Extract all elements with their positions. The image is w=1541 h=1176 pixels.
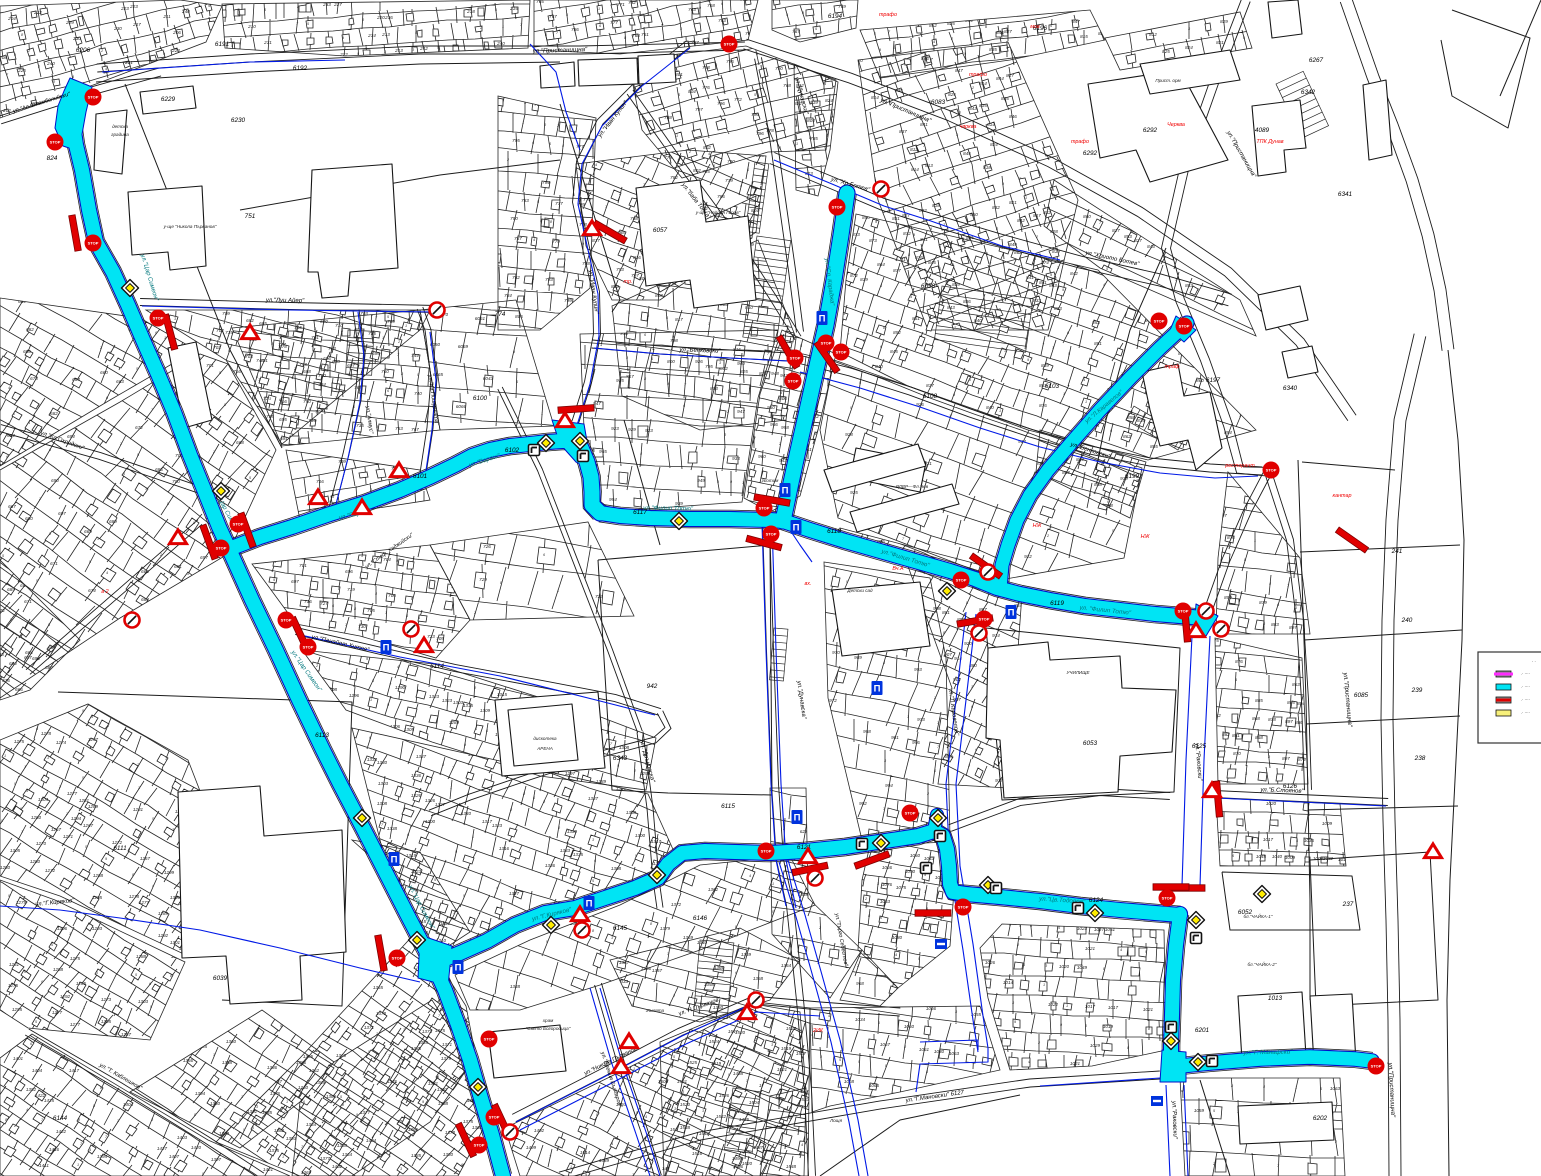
svg-text:6066: 6066 bbox=[456, 404, 467, 409]
svg-text:1305: 1305 bbox=[404, 727, 415, 732]
svg-text:STOP: STOP bbox=[474, 1143, 485, 1148]
svg-text:846: 846 bbox=[921, 56, 929, 61]
svg-text:4: 4 bbox=[26, 1108, 28, 1112]
svg-text:1514: 1514 bbox=[580, 1150, 591, 1155]
svg-text:1525: 1525 bbox=[687, 1060, 698, 1065]
svg-text:824: 824 bbox=[47, 155, 58, 162]
svg-text:1: 1 bbox=[906, 65, 908, 69]
svg-text:1304: 1304 bbox=[38, 797, 49, 802]
svg-text:837: 837 bbox=[926, 383, 934, 388]
svg-text:1519: 1519 bbox=[781, 1046, 792, 1051]
svg-text:682: 682 bbox=[50, 411, 58, 416]
svg-text:2ИК: 2ИК bbox=[812, 1028, 824, 1034]
svg-text:897: 897 bbox=[1285, 719, 1293, 724]
svg-text:1323: 1323 bbox=[411, 869, 422, 874]
svg-text:885: 885 bbox=[1287, 700, 1295, 705]
svg-text:942: 942 bbox=[647, 683, 658, 690]
svg-text:719: 719 bbox=[347, 587, 355, 592]
svg-text:788: 788 bbox=[664, 115, 672, 120]
svg-text:709: 709 bbox=[338, 459, 346, 464]
svg-text:700: 700 bbox=[172, 479, 180, 484]
svg-text:678: 678 bbox=[279, 344, 287, 349]
svg-text:817: 817 bbox=[675, 317, 683, 322]
svg-text:1487: 1487 bbox=[753, 1145, 764, 1150]
svg-text:1305: 1305 bbox=[10, 848, 21, 853]
svg-text:881: 881 bbox=[942, 610, 950, 615]
svg-text:1021: 1021 bbox=[1085, 946, 1096, 951]
svg-text:1040: 1040 bbox=[1272, 854, 1283, 859]
svg-text:1: 1 bbox=[969, 378, 971, 382]
svg-text:763: 763 bbox=[688, 7, 696, 12]
svg-text:4: 4 bbox=[1103, 283, 1105, 287]
svg-text:1305: 1305 bbox=[101, 1019, 112, 1024]
svg-text:1360: 1360 bbox=[226, 1039, 237, 1044]
svg-text:6197: 6197 bbox=[1206, 377, 1221, 384]
svg-text:1315: 1315 bbox=[497, 692, 508, 697]
svg-text:948: 948 bbox=[771, 371, 779, 376]
svg-text:1378: 1378 bbox=[445, 1130, 456, 1135]
svg-text:237: 237 bbox=[1342, 901, 1354, 908]
svg-text:845: 845 bbox=[963, 151, 971, 156]
svg-text:1: 1 bbox=[742, 481, 744, 485]
svg-text:STOP: STOP bbox=[759, 506, 770, 511]
svg-text:.· ····: .· ···· bbox=[1521, 684, 1530, 689]
svg-text:678: 678 bbox=[30, 376, 38, 381]
svg-text:4: 4 bbox=[49, 340, 51, 344]
svg-text:230: 230 bbox=[113, 26, 122, 31]
svg-text:715: 715 bbox=[266, 414, 274, 419]
svg-text:862: 862 bbox=[1123, 434, 1131, 439]
svg-text:1063: 1063 bbox=[880, 899, 891, 904]
svg-text:686: 686 bbox=[23, 349, 31, 354]
svg-text:1380: 1380 bbox=[443, 1152, 454, 1157]
svg-text:STOP: STOP bbox=[1154, 319, 1165, 324]
svg-text:STOP: STOP bbox=[836, 350, 847, 355]
svg-text:STOP: STOP bbox=[788, 379, 799, 384]
svg-text:947: 947 bbox=[737, 409, 745, 414]
svg-text:1375: 1375 bbox=[269, 1148, 280, 1153]
svg-text:1274: 1274 bbox=[56, 740, 67, 745]
svg-text:1: 1 bbox=[13, 412, 15, 416]
svg-text:1386: 1386 bbox=[296, 1060, 307, 1065]
svg-text:1: 1 bbox=[21, 830, 23, 834]
svg-text:1288: 1288 bbox=[93, 873, 104, 878]
svg-text:1411: 1411 bbox=[39, 1163, 49, 1168]
svg-text:STOP: STOP bbox=[1162, 896, 1173, 901]
svg-text:1337: 1337 bbox=[588, 796, 599, 801]
svg-text:трафо: трафо bbox=[879, 12, 897, 18]
svg-text:1375: 1375 bbox=[435, 1028, 446, 1033]
svg-text:6194: 6194 bbox=[828, 13, 843, 20]
svg-text:860: 860 bbox=[1083, 214, 1091, 219]
svg-text:821: 821 bbox=[1009, 200, 1017, 205]
svg-text:1: 1 bbox=[382, 336, 384, 340]
svg-text:STOP: STOP bbox=[958, 905, 969, 910]
svg-text:1416: 1416 bbox=[49, 1147, 60, 1152]
svg-text:839: 839 bbox=[1041, 363, 1049, 368]
svg-text:6103: 6103 bbox=[1045, 383, 1060, 390]
svg-text:1: 1 bbox=[1295, 1086, 1297, 1090]
svg-text:814: 814 bbox=[987, 122, 995, 127]
svg-text:1335: 1335 bbox=[573, 852, 584, 857]
svg-text:у-ще "Найден Геров": у-ще "Найден Геров" bbox=[695, 209, 741, 215]
svg-text:681: 681 bbox=[174, 564, 182, 569]
svg-text:853: 853 bbox=[1185, 283, 1193, 288]
svg-text:4: 4 bbox=[740, 184, 742, 188]
svg-text:1402: 1402 bbox=[332, 1164, 343, 1169]
svg-text:1355: 1355 bbox=[373, 985, 384, 990]
svg-text:785: 785 bbox=[702, 169, 710, 174]
svg-text:4: 4 bbox=[1120, 948, 1122, 952]
svg-text:709: 709 bbox=[436, 636, 444, 641]
svg-text:798: 798 bbox=[702, 65, 710, 70]
svg-text:1019: 1019 bbox=[1103, 1024, 1114, 1029]
svg-text:6111: 6111 bbox=[113, 845, 127, 852]
svg-text:6340: 6340 bbox=[1283, 385, 1298, 392]
svg-text:гьотим: гьотим bbox=[762, 478, 780, 483]
svg-text:846: 846 bbox=[996, 30, 1004, 35]
svg-text:1326: 1326 bbox=[411, 793, 422, 798]
svg-text:682: 682 bbox=[246, 318, 254, 323]
svg-text:.· ····: .· ···· bbox=[1521, 671, 1530, 676]
svg-text:1: 1 bbox=[258, 1058, 260, 1062]
svg-text:1358: 1358 bbox=[222, 1060, 233, 1065]
svg-text:774: 774 bbox=[495, 311, 506, 318]
svg-text:1285: 1285 bbox=[76, 981, 87, 986]
svg-text:4: 4 bbox=[418, 616, 420, 620]
svg-text:1295: 1295 bbox=[12, 1007, 23, 1012]
svg-text:1: 1 bbox=[83, 1006, 85, 1010]
svg-text:ул."Г. Манафски": ул."Г. Манафски" bbox=[1242, 1049, 1293, 1057]
svg-text:772: 772 bbox=[734, 97, 742, 102]
svg-text:4: 4 bbox=[880, 284, 882, 288]
svg-text:956: 956 bbox=[912, 740, 920, 745]
svg-text:1: 1 bbox=[286, 1100, 288, 1104]
svg-text:783: 783 bbox=[521, 198, 529, 203]
svg-text:4: 4 bbox=[719, 408, 721, 412]
svg-text:726: 726 bbox=[483, 544, 491, 549]
svg-text:812: 812 bbox=[910, 147, 918, 152]
svg-text:825: 825 bbox=[948, 92, 956, 97]
svg-text:1370: 1370 bbox=[219, 1131, 230, 1136]
svg-text:4: 4 bbox=[376, 425, 378, 429]
svg-text:1: 1 bbox=[598, 7, 600, 11]
svg-text:818: 818 bbox=[932, 203, 940, 208]
svg-text:709: 709 bbox=[387, 319, 395, 324]
svg-text:1548: 1548 bbox=[680, 1125, 691, 1130]
svg-text:968: 968 bbox=[856, 981, 864, 986]
svg-text:222: 222 bbox=[33, 10, 42, 15]
svg-text:1499: 1499 bbox=[526, 1145, 537, 1150]
svg-text:923: 923 bbox=[611, 426, 619, 431]
svg-text:824: 824 bbox=[1185, 45, 1193, 50]
svg-text:829: 829 bbox=[1220, 19, 1228, 24]
svg-text:897: 897 bbox=[1289, 625, 1297, 630]
svg-text:1277: 1277 bbox=[52, 1010, 63, 1015]
svg-text:940: 940 bbox=[737, 361, 745, 366]
svg-text:215: 215 bbox=[509, 6, 518, 11]
svg-text:845: 845 bbox=[928, 260, 936, 265]
svg-text:923: 923 bbox=[645, 428, 653, 433]
svg-text:П: П bbox=[383, 642, 390, 653]
svg-text:1548: 1548 bbox=[786, 1164, 797, 1169]
svg-text:6144: 6144 bbox=[53, 1115, 68, 1122]
svg-text:1021: 1021 bbox=[1143, 1007, 1154, 1012]
svg-text:815: 815 bbox=[1001, 96, 1009, 101]
svg-text:1300: 1300 bbox=[425, 819, 436, 824]
svg-text:1: 1 bbox=[1025, 196, 1027, 200]
svg-text:4: 4 bbox=[644, 1136, 646, 1140]
svg-text:1338: 1338 bbox=[626, 810, 637, 815]
svg-text:242: 242 bbox=[419, 46, 428, 51]
svg-text:1425: 1425 bbox=[44, 1098, 55, 1103]
svg-text:849: 849 bbox=[1009, 242, 1017, 247]
svg-text:ул."Филип Тотю": ул."Филип Тотю" bbox=[642, 505, 694, 513]
svg-text:STOP: STOP bbox=[303, 645, 314, 650]
svg-text:853: 853 bbox=[1124, 234, 1132, 239]
svg-text:768: 768 bbox=[632, 33, 640, 38]
svg-text:1: 1 bbox=[1063, 392, 1065, 396]
svg-text:1281: 1281 bbox=[133, 807, 144, 812]
svg-text:1061: 1061 bbox=[919, 1047, 930, 1052]
svg-text:1289: 1289 bbox=[158, 911, 169, 916]
svg-text:1: 1 bbox=[311, 353, 313, 357]
svg-text:777: 777 bbox=[555, 201, 563, 206]
svg-text:1: 1 bbox=[956, 53, 958, 57]
svg-text:1308: 1308 bbox=[611, 866, 622, 871]
svg-text:1516: 1516 bbox=[692, 1151, 703, 1156]
svg-text:1303: 1303 bbox=[378, 781, 389, 786]
svg-text:676: 676 bbox=[2, 678, 10, 683]
svg-text:799: 799 bbox=[564, 298, 572, 303]
svg-text:1067: 1067 bbox=[880, 1042, 891, 1047]
svg-text:784: 784 bbox=[504, 293, 512, 298]
svg-text:6206: 6206 bbox=[76, 47, 91, 54]
svg-text:6292: 6292 bbox=[1143, 127, 1158, 134]
svg-text:1020: 1020 bbox=[1059, 964, 1070, 969]
svg-text:672: 672 bbox=[0, 608, 5, 613]
svg-text:1059: 1059 bbox=[1194, 1108, 1205, 1113]
svg-text:1049: 1049 bbox=[1077, 965, 1088, 970]
svg-text:1547: 1547 bbox=[728, 1029, 739, 1034]
svg-text:1: 1 bbox=[385, 611, 387, 615]
svg-text:1292: 1292 bbox=[60, 994, 71, 999]
svg-text:1290: 1290 bbox=[395, 685, 406, 690]
svg-text:STOP: STOP bbox=[153, 316, 164, 321]
svg-text:929: 929 bbox=[628, 427, 636, 432]
svg-text:1: 1 bbox=[541, 412, 543, 416]
svg-text:1280: 1280 bbox=[30, 859, 41, 864]
svg-text:760: 760 bbox=[381, 369, 389, 374]
svg-text:861: 861 bbox=[1039, 280, 1047, 285]
svg-text:1009: 1009 bbox=[1285, 855, 1296, 860]
svg-text:716: 716 bbox=[279, 399, 287, 404]
svg-text:706: 706 bbox=[388, 593, 396, 598]
svg-text:1: 1 bbox=[1078, 315, 1080, 319]
svg-text:Лощя: Лощя bbox=[829, 1118, 843, 1123]
svg-text:240: 240 bbox=[46, 61, 55, 66]
svg-text:6229: 6229 bbox=[161, 96, 176, 103]
svg-text:4: 4 bbox=[739, 1052, 741, 1056]
svg-text:1404: 1404 bbox=[32, 1068, 43, 1073]
svg-text:1277: 1277 bbox=[139, 900, 150, 905]
svg-text:. .: . . bbox=[1532, 658, 1536, 663]
svg-text:4: 4 bbox=[8, 386, 10, 390]
svg-text:4: 4 bbox=[105, 67, 107, 71]
svg-text:градина: градина bbox=[111, 132, 129, 137]
svg-text:239: 239 bbox=[1411, 687, 1423, 694]
svg-text:842: 842 bbox=[1070, 271, 1078, 276]
svg-text:803: 803 bbox=[710, 386, 718, 391]
svg-text:1333: 1333 bbox=[560, 848, 571, 853]
svg-text:740: 740 bbox=[414, 391, 422, 396]
svg-text:949: 949 bbox=[697, 478, 705, 483]
svg-text:1: 1 bbox=[939, 267, 941, 271]
svg-text:тр.: тр. bbox=[624, 279, 633, 285]
svg-text:6101: 6101 bbox=[413, 473, 428, 480]
svg-text:1323: 1323 bbox=[442, 698, 453, 703]
svg-text:220: 220 bbox=[376, 15, 385, 20]
svg-text:790: 790 bbox=[510, 216, 518, 221]
svg-text:819: 819 bbox=[810, 100, 818, 105]
svg-text:1: 1 bbox=[677, 159, 679, 163]
svg-text:922: 922 bbox=[1024, 554, 1032, 559]
svg-text:4: 4 bbox=[28, 421, 30, 425]
svg-text:6083: 6083 bbox=[931, 99, 946, 106]
svg-text:1376: 1376 bbox=[270, 1091, 281, 1096]
svg-text:847: 847 bbox=[1072, 19, 1080, 24]
svg-text:1366: 1366 bbox=[183, 1058, 194, 1063]
svg-text:1273: 1273 bbox=[101, 997, 112, 1002]
svg-text:1: 1 bbox=[966, 448, 968, 452]
svg-text:1: 1 bbox=[339, 1172, 341, 1176]
svg-text:877: 877 bbox=[893, 268, 901, 273]
svg-text:814: 814 bbox=[911, 167, 919, 172]
svg-text:1377: 1377 bbox=[360, 1110, 371, 1115]
svg-text:666: 666 bbox=[15, 687, 23, 692]
svg-text:842: 842 bbox=[1017, 218, 1025, 223]
svg-text:806: 806 bbox=[515, 314, 523, 319]
svg-text:710: 710 bbox=[335, 323, 343, 328]
svg-text:1045: 1045 bbox=[1256, 854, 1267, 859]
svg-text:793: 793 bbox=[718, 18, 726, 23]
svg-text:1551: 1551 bbox=[677, 1079, 688, 1084]
svg-text:804: 804 bbox=[807, 118, 815, 123]
svg-text:П: П bbox=[1008, 607, 1015, 618]
svg-text:4: 4 bbox=[1235, 678, 1237, 682]
svg-text:1293: 1293 bbox=[92, 926, 103, 931]
svg-text:689: 689 bbox=[109, 519, 117, 524]
svg-text:1: 1 bbox=[999, 409, 1001, 413]
svg-text:815: 815 bbox=[979, 103, 987, 108]
svg-text:989: 989 bbox=[854, 655, 862, 660]
svg-text:ресторант: ресторант bbox=[1224, 463, 1255, 469]
svg-text:1288: 1288 bbox=[53, 967, 64, 972]
svg-text:4089: 4089 bbox=[1255, 127, 1270, 134]
svg-text:1385: 1385 bbox=[411, 1153, 422, 1158]
svg-text:6201: 6201 bbox=[1195, 1027, 1210, 1034]
svg-text:870: 870 bbox=[1233, 751, 1241, 756]
svg-text:899: 899 bbox=[1224, 595, 1232, 600]
svg-text:861: 861 bbox=[912, 316, 920, 321]
svg-text:1063: 1063 bbox=[949, 1051, 960, 1056]
svg-text:УЧИЛИЩЕ: УЧИЛИЩЕ bbox=[1066, 670, 1090, 675]
svg-text:1: 1 bbox=[1052, 346, 1054, 350]
svg-text:1303: 1303 bbox=[138, 999, 149, 1004]
svg-text:705: 705 bbox=[367, 608, 375, 613]
svg-text:в 2: в 2 bbox=[101, 589, 108, 595]
svg-text:1: 1 bbox=[1254, 539, 1256, 543]
svg-text:864: 864 bbox=[877, 262, 885, 267]
svg-text:933: 933 bbox=[732, 456, 740, 461]
svg-text:240: 240 bbox=[1401, 617, 1413, 624]
svg-text:1287: 1287 bbox=[121, 1032, 132, 1037]
svg-text:1306: 1306 bbox=[57, 926, 68, 931]
svg-text:1337: 1337 bbox=[416, 754, 427, 759]
svg-text:664: 664 bbox=[25, 650, 33, 655]
svg-text:1: 1 bbox=[157, 579, 159, 583]
svg-text:954: 954 bbox=[609, 497, 617, 502]
svg-text:трафо: трафо bbox=[969, 72, 987, 78]
svg-text:6124: 6124 bbox=[1089, 897, 1104, 904]
svg-text:ТПК Дунав: ТПК Дунав bbox=[1256, 139, 1283, 145]
svg-text:1026: 1026 bbox=[985, 960, 996, 965]
svg-text:223: 223 bbox=[120, 6, 129, 11]
svg-text:850: 850 bbox=[970, 212, 978, 217]
svg-text:1022: 1022 bbox=[1048, 1002, 1059, 1007]
svg-text:STOP: STOP bbox=[821, 341, 832, 346]
svg-text:874: 874 bbox=[1298, 757, 1306, 762]
svg-text:841: 841 bbox=[920, 237, 928, 242]
svg-text:790: 790 bbox=[775, 66, 783, 71]
svg-text:1280: 1280 bbox=[0, 865, 11, 870]
svg-text:АРЕНА: АРЕНА bbox=[536, 746, 553, 751]
svg-text:1: 1 bbox=[502, 25, 504, 29]
svg-text:690: 690 bbox=[51, 478, 59, 483]
svg-text:НЖ: НЖ bbox=[1033, 523, 1043, 529]
svg-text:1315: 1315 bbox=[463, 703, 474, 708]
svg-text:801: 801 bbox=[675, 72, 683, 77]
svg-text:4: 4 bbox=[939, 245, 941, 249]
svg-text:814: 814 bbox=[871, 95, 879, 100]
svg-text:788: 788 bbox=[630, 216, 638, 221]
svg-text:1375: 1375 bbox=[463, 1119, 474, 1124]
svg-text:778: 778 bbox=[766, 128, 774, 133]
svg-text:бл."ЧАЙКА-2": бл."ЧАЙКА-2" bbox=[1248, 960, 1277, 967]
svg-text:1381: 1381 bbox=[428, 1081, 439, 1086]
svg-text:1427: 1427 bbox=[157, 1146, 168, 1151]
svg-text:663: 663 bbox=[116, 379, 124, 384]
svg-text:782: 782 bbox=[670, 175, 678, 180]
svg-text:ул."Луи Айер": ул."Луи Айер" bbox=[265, 297, 305, 305]
svg-text:1422: 1422 bbox=[56, 1129, 67, 1134]
svg-text:4: 4 bbox=[1025, 337, 1027, 341]
svg-text:234: 234 bbox=[367, 33, 376, 38]
svg-text:831: 831 bbox=[892, 216, 900, 221]
svg-text:697: 697 bbox=[200, 555, 208, 560]
svg-text:1270: 1270 bbox=[36, 841, 47, 846]
svg-text:218: 218 bbox=[466, 9, 475, 14]
svg-text:1: 1 bbox=[164, 336, 166, 340]
svg-text:855: 855 bbox=[1150, 444, 1158, 449]
svg-text:1278: 1278 bbox=[41, 731, 52, 736]
svg-text:6085: 6085 bbox=[1354, 692, 1369, 699]
svg-text:701: 701 bbox=[206, 363, 214, 368]
svg-text:1348: 1348 bbox=[510, 984, 521, 989]
svg-text:993: 993 bbox=[914, 667, 922, 672]
svg-text:1520: 1520 bbox=[742, 1161, 753, 1166]
svg-text:4: 4 bbox=[1083, 378, 1085, 382]
